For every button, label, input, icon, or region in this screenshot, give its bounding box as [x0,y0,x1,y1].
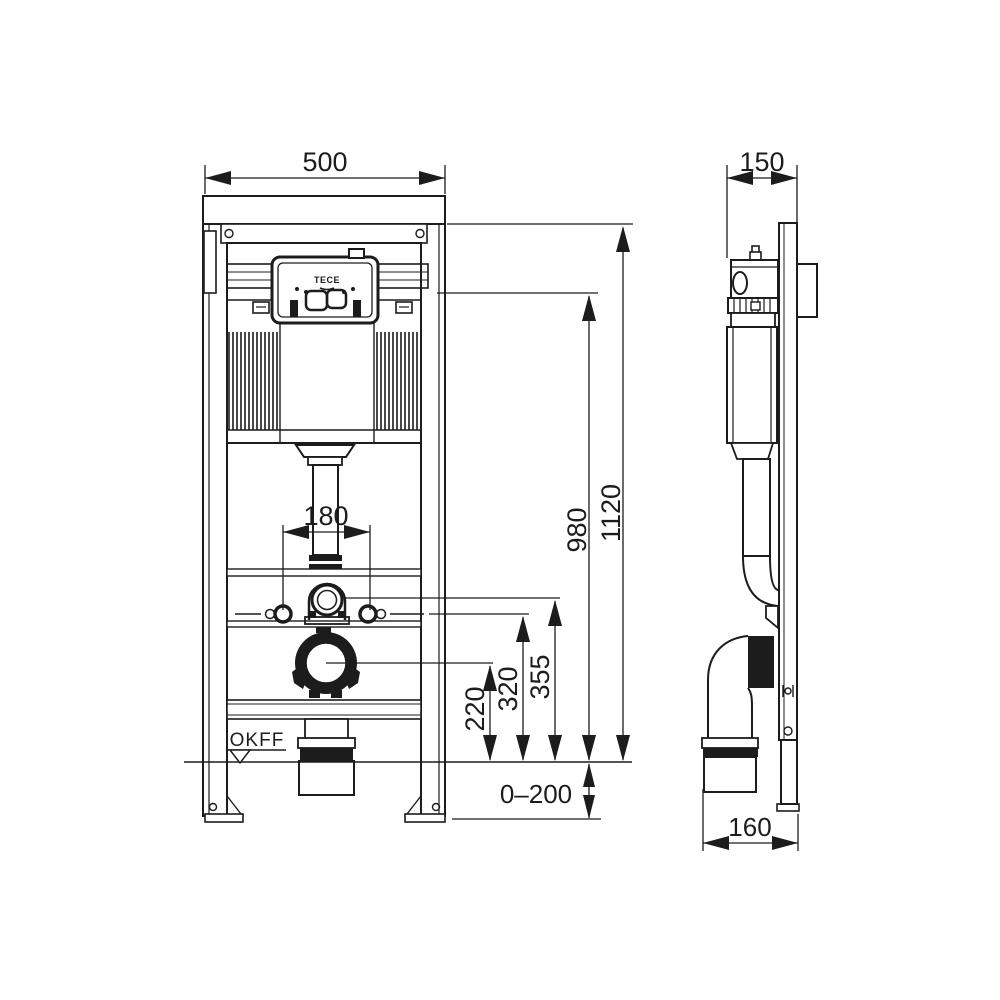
arrow-down-icon [483,735,497,761]
upper-crossbar [221,224,427,243]
arrow-up-icon [583,763,595,787]
dim-label-0-200: 0–200 [500,779,572,809]
arrow-left-icon [205,171,231,185]
rail-hole [784,727,792,735]
installation-frame-drawing: TECE [0,0,1000,1000]
dim-label-320: 320 [493,666,523,711]
arrow-right-icon [419,171,445,185]
cistern-tank [727,327,777,443]
floor-level-label: OKFF [230,730,285,751]
arrow-down-icon [516,735,530,761]
box-clip-left [290,300,298,317]
cistern-ribs-left [229,332,277,430]
cistern-head [731,260,778,298]
arrow-down-icon [548,735,562,761]
wall-bracket [797,264,817,317]
dimension-0-200: 0–200 [452,763,601,819]
flush-pipe-bell [296,445,354,457]
rail-foot [781,740,797,804]
bolt-small-right [377,610,386,619]
mount-strip-left [227,264,273,288]
drain-elbow-side [702,636,774,792]
dim-label-500: 500 [302,147,347,177]
floor-level-icon [230,750,250,763]
flush-pipe-outlet [766,606,778,628]
dimension-500: 500 [205,147,445,194]
dim-label-980: 980 [562,507,592,552]
drawing-canvas: TECE [0,0,1000,1000]
wall-rail [777,223,817,811]
rail-hole [785,688,791,694]
bolt-small-left [266,610,275,619]
cistern-side [727,246,778,459]
drain-socket-side [704,757,756,792]
drain-socket-front [298,719,355,795]
arrow-down-icon [582,735,596,761]
flush-bend-socket [312,585,342,615]
dim-label-150: 150 [739,147,784,177]
dim-label-160: 160 [728,812,771,842]
gasket-band [300,748,353,761]
drain-connection [292,632,360,698]
flush-bend-connection [305,584,349,624]
box-top-tab [349,249,364,258]
arrow-up-icon [582,295,596,321]
rail-base-plate [777,804,799,811]
arrow-up-icon [616,226,630,252]
bottom-crossbar [227,700,421,719]
right-rail [421,196,445,816]
pipe-coupling-band [309,564,342,569]
dim-label-180: 180 [303,501,348,531]
flush-pipe-side [743,459,778,628]
top-crossbar [203,196,445,224]
arrow-up-icon [516,616,530,642]
mid-crossbar-1 [227,569,421,576]
dim-label-220: 220 [460,686,490,731]
drain-sleeve [748,636,774,688]
box-dot [295,287,299,291]
arrow-down-icon [583,795,595,819]
inspection-box: TECE [272,249,378,323]
left-foot [205,796,243,822]
tank-outlet-cone [731,443,773,459]
arrow-down-icon [616,735,630,761]
pipe-coupling-band [309,555,342,561]
dim-label-355: 355 [525,654,555,699]
bolt-right [360,606,376,622]
floor-level: OKFF [184,730,632,763]
wall-bracket-tab [204,231,216,293]
dimension-150: 150 [727,147,797,258]
bracket-tab [316,627,331,633]
arrow-left-icon [703,836,729,850]
box-dot [351,287,355,291]
arrow-up-icon [548,600,562,626]
arrow-right-icon [772,836,798,850]
dimension-160: 160 [703,789,798,851]
tece-logo: TECE [314,275,340,285]
dim-label-1120: 1120 [596,484,626,542]
gasket-band [703,748,758,757]
box-clip-right [353,300,361,317]
side-view [702,223,817,811]
cistern-ribs-right [377,332,417,430]
